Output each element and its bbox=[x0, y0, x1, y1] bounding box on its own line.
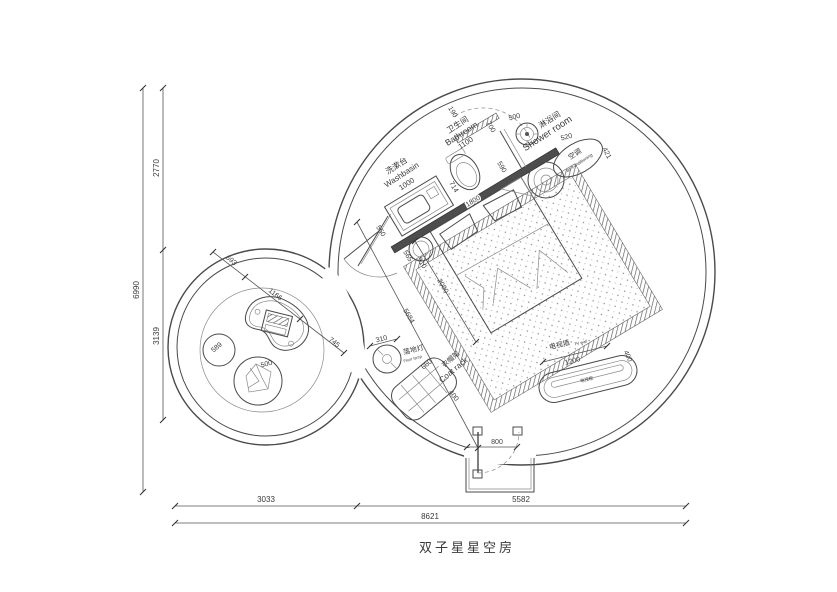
dim-310: 310 bbox=[375, 335, 388, 345]
corridor-opening bbox=[314, 263, 375, 382]
dim-1800: 1800 bbox=[465, 195, 482, 209]
laptop bbox=[261, 310, 292, 337]
dim-500-chair: 500 bbox=[260, 360, 273, 370]
corridor-door-swing-arc bbox=[344, 259, 397, 277]
dim-421: 421 bbox=[600, 146, 612, 160]
dim-590: 590 bbox=[495, 160, 507, 174]
dim-400-tv: 400 bbox=[622, 350, 633, 364]
door-jamb-right bbox=[513, 427, 522, 435]
dim-6990: 6990 bbox=[132, 281, 141, 299]
lounge-chair bbox=[234, 357, 282, 405]
entrance bbox=[464, 427, 536, 492]
dim-5582: 5582 bbox=[512, 495, 530, 504]
dim-660: 660 bbox=[420, 358, 434, 371]
dim-line-693-1166-745 bbox=[213, 252, 344, 353]
dim-714: 714 bbox=[447, 180, 459, 194]
floor-plan-drawing: 699027703139303355828621洗漱台Washbasin1000… bbox=[0, 0, 837, 592]
floor-lamp bbox=[373, 345, 401, 373]
entry-wall-opening bbox=[464, 448, 536, 464]
dim-8621: 8621 bbox=[421, 512, 439, 521]
dim-520: 520 bbox=[560, 133, 573, 143]
dim-500-shower: 500 bbox=[508, 113, 521, 123]
dim-5684: 5684 bbox=[401, 308, 415, 325]
dim-589: 589 bbox=[210, 341, 224, 354]
dim-565: 565 bbox=[401, 249, 413, 263]
plan-title: 双子星星空房 bbox=[419, 540, 515, 555]
dim-2770: 2770 bbox=[152, 159, 161, 177]
dim-190: 190 bbox=[446, 105, 458, 119]
bathroom-left-wall-inner bbox=[361, 214, 391, 264]
dim-700: 700 bbox=[484, 120, 496, 134]
dim-3033: 3033 bbox=[257, 495, 275, 504]
bedroom-zone bbox=[373, 164, 662, 425]
dim-3139: 3139 bbox=[152, 327, 161, 345]
dim-400-coatrack: 400 bbox=[447, 389, 460, 403]
corridor-door-leaf bbox=[344, 231, 379, 259]
bathroom-left-wall bbox=[358, 216, 388, 266]
label-tvcabinet: 电视柜 bbox=[579, 374, 594, 384]
washbasin-counter bbox=[385, 176, 454, 236]
floor-plan-page: 699027703139303355828621洗漱台Washbasin1000… bbox=[0, 0, 837, 592]
dim-800: 800 bbox=[491, 439, 503, 446]
toilet bbox=[443, 146, 486, 195]
